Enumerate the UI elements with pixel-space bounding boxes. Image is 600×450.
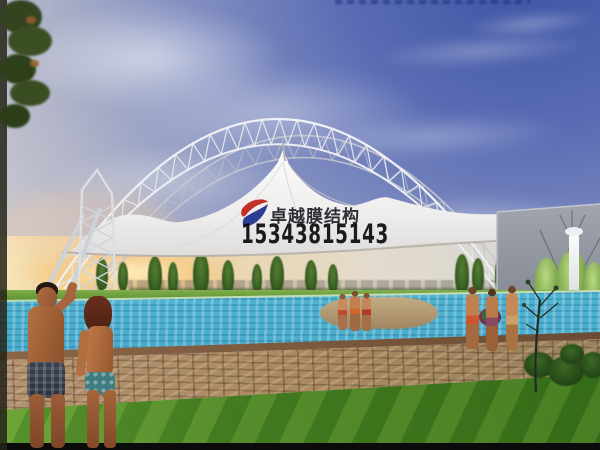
watermark-phone-number: 15343815143	[241, 219, 389, 250]
man-leg	[51, 394, 65, 448]
foreground-man	[14, 282, 80, 448]
man-leg	[30, 394, 44, 448]
woman-torso	[87, 326, 113, 376]
leaf-cluster	[554, 286, 559, 291]
tree-trunk	[535, 300, 540, 392]
man-swim-trunks	[27, 362, 65, 398]
leaf-cluster	[526, 280, 531, 285]
foreground-woman	[74, 296, 132, 450]
woman-leg	[104, 390, 116, 448]
woman-leg	[87, 390, 99, 448]
tree-branches	[524, 282, 558, 332]
architectural-rendering-photo: 卓越膜结构 15343815143	[0, 0, 600, 450]
man-torso	[28, 306, 64, 368]
leaf-cluster	[522, 303, 526, 307]
